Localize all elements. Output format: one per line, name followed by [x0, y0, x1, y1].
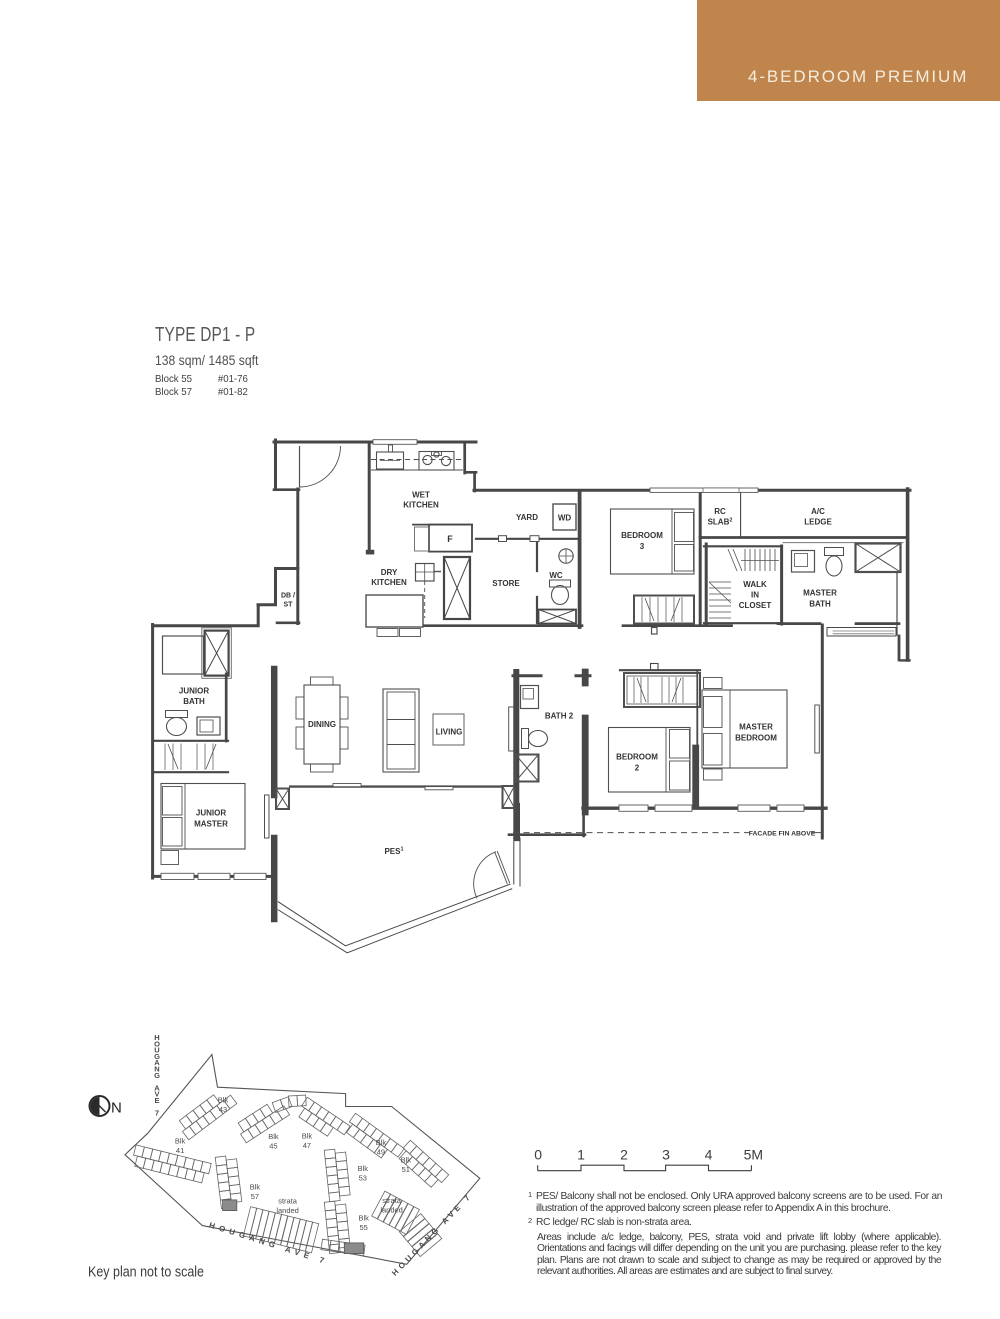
svg-text:YARD: YARD: [516, 513, 538, 522]
svg-text:BATH: BATH: [183, 697, 205, 706]
svg-text:MASTER: MASTER: [194, 820, 228, 829]
svg-text:landed: landed: [380, 1206, 403, 1215]
svg-text:RC: RC: [714, 507, 726, 516]
svg-text:Blk: Blk: [376, 1138, 387, 1147]
svg-text:N: N: [111, 1100, 122, 1117]
svg-text:A/C: A/C: [811, 507, 825, 516]
svg-text:Blk: Blk: [358, 1213, 369, 1222]
svg-text:1: 1: [577, 1147, 585, 1163]
svg-text:LEDGE: LEDGE: [804, 518, 832, 527]
svg-text:IN: IN: [751, 591, 759, 600]
svg-text:FACADE FIN ABOVE: FACADE FIN ABOVE: [749, 831, 816, 838]
svg-text:WC: WC: [549, 571, 563, 580]
svg-text:strata: strata: [382, 1196, 402, 1205]
svg-text:MASTER: MASTER: [739, 723, 773, 732]
svg-text:JUNIOR: JUNIOR: [196, 809, 226, 818]
svg-text:LIVING: LIVING: [436, 728, 463, 737]
svg-text:3: 3: [662, 1147, 670, 1163]
svg-text:HOUGANG AVE 7: HOUGANG AVE 7: [390, 1191, 474, 1278]
svg-text:F: F: [447, 534, 453, 544]
svg-text:BEDROOM: BEDROOM: [616, 753, 658, 762]
svg-text:4: 4: [705, 1147, 713, 1163]
svg-text:Blk: Blk: [218, 1096, 229, 1105]
svg-text:5M: 5M: [744, 1147, 763, 1163]
svg-text:SLAB2: SLAB2: [708, 518, 733, 527]
svg-text:Blk: Blk: [302, 1132, 313, 1141]
svg-text:BATH: BATH: [809, 600, 831, 609]
svg-text:JUNIOR: JUNIOR: [179, 687, 209, 696]
svg-text:49: 49: [377, 1148, 385, 1157]
svg-text:BATH 2: BATH 2: [545, 712, 574, 721]
svg-text:41: 41: [176, 1146, 184, 1155]
svg-text:MASTER: MASTER: [803, 589, 837, 598]
svg-text:51: 51: [402, 1165, 410, 1174]
svg-text:Key plan not to scale: Key plan not to scale: [88, 1265, 204, 1281]
svg-text:Blk: Blk: [358, 1164, 369, 1173]
svg-text:DRY: DRY: [381, 568, 398, 577]
svg-text:2: 2: [635, 764, 640, 773]
svg-text:strata: strata: [278, 1197, 298, 1206]
svg-text:DB /: DB /: [281, 593, 295, 600]
svg-text:WALK: WALK: [743, 580, 767, 589]
svg-text:53: 53: [359, 1173, 367, 1182]
svg-text:2: 2: [620, 1147, 628, 1163]
svg-text:43: 43: [219, 1105, 227, 1114]
svg-text:Blk: Blk: [268, 1132, 279, 1141]
svg-text:WD: WD: [558, 514, 572, 523]
svg-text:Blk: Blk: [401, 1156, 412, 1165]
svg-text:57: 57: [251, 1192, 259, 1201]
svg-text:ST: ST: [284, 602, 294, 609]
svg-text:Blk: Blk: [175, 1136, 186, 1145]
svg-text:47: 47: [303, 1141, 311, 1150]
svg-text:3: 3: [640, 542, 645, 551]
svg-text:BEDROOM: BEDROOM: [621, 531, 663, 540]
svg-text:KITCHEN: KITCHEN: [371, 578, 407, 587]
svg-text:55: 55: [360, 1223, 368, 1232]
svg-text:45: 45: [269, 1142, 277, 1151]
svg-text:0: 0: [534, 1147, 542, 1163]
svg-text:PES1: PES1: [384, 847, 403, 857]
svg-text:CLOSET: CLOSET: [739, 601, 772, 610]
svg-text:DINING: DINING: [308, 720, 336, 729]
svg-text:HOUGANG AVE 7: HOUGANG AVE 7: [154, 1033, 160, 1118]
svg-text:STORE: STORE: [492, 579, 520, 588]
svg-text:BEDROOM: BEDROOM: [735, 734, 777, 743]
svg-text:landed: landed: [276, 1206, 299, 1215]
svg-text:WET: WET: [412, 491, 430, 500]
svg-text:KITCHEN: KITCHEN: [403, 501, 439, 510]
svg-text:Blk: Blk: [250, 1182, 261, 1191]
